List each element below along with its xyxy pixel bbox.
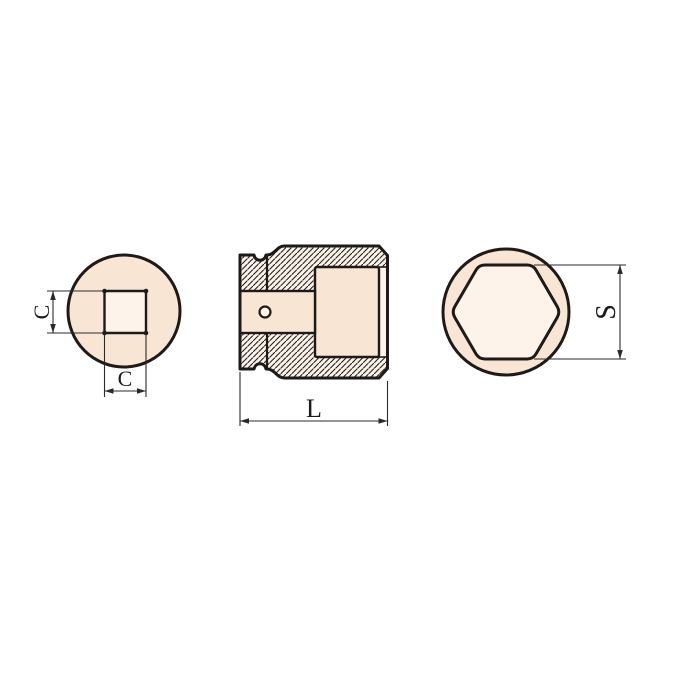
retaining-pin-hole: [260, 307, 271, 318]
dim-label-c-vertical: C: [29, 305, 54, 320]
corner-dot: [144, 289, 149, 294]
dim-label-l: L: [306, 394, 322, 423]
hex-socket-opening: [453, 265, 559, 359]
square-drive-hole: [105, 291, 147, 333]
dim-label-s: S: [591, 304, 622, 320]
square-drive-channel: [240, 291, 315, 333]
technical-drawing: C C: [0, 0, 700, 700]
hex-cavity-section: [315, 267, 379, 357]
dim-label-c-horizontal: C: [118, 366, 133, 391]
